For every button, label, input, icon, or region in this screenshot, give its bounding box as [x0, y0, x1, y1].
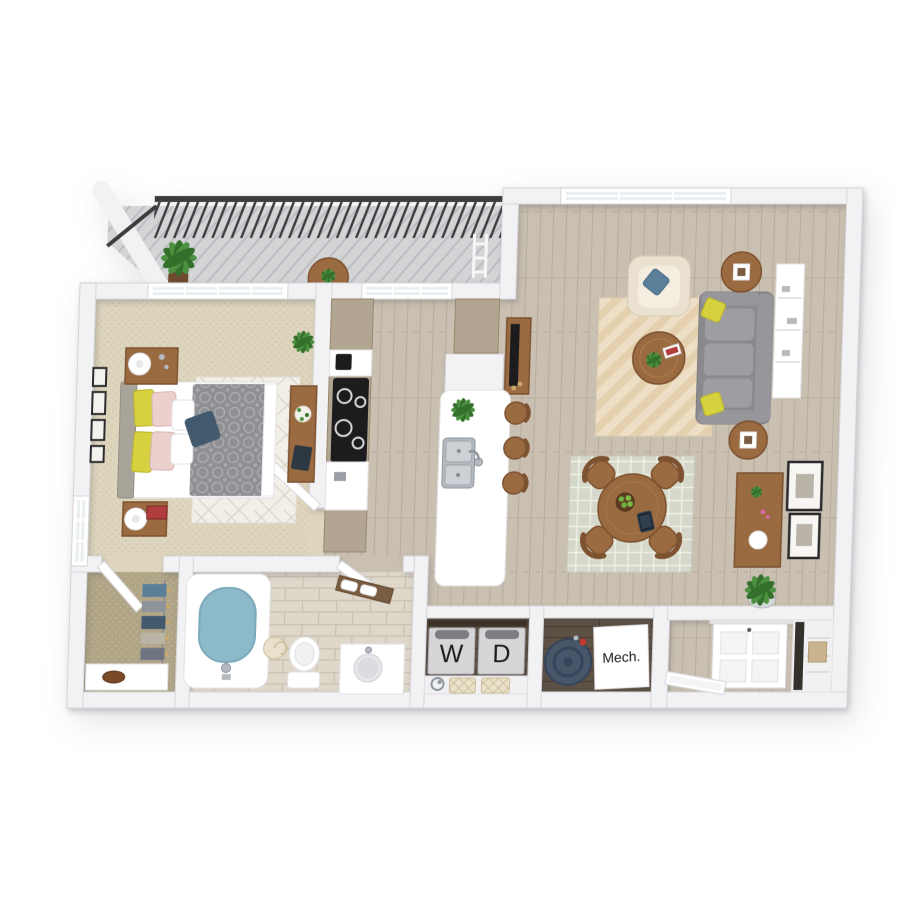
bed: [117, 382, 277, 498]
barstool: [502, 472, 527, 494]
bedroom-side-window: [71, 496, 89, 566]
storage-box: [808, 642, 827, 662]
floorplan-page: W D: [0, 0, 900, 900]
coat-closet: [791, 620, 833, 692]
tv-console: [505, 318, 531, 394]
mech-label: Mech.: [602, 648, 640, 666]
cooktop: [330, 378, 369, 462]
armchair: [627, 256, 691, 316]
floorplan-rendering: W D: [0, 0, 900, 900]
kitchen-island: [435, 390, 511, 586]
balcony: [98, 190, 503, 298]
end-table-bottom: [729, 421, 768, 459]
bathtub: [183, 574, 271, 688]
living-room-window: [561, 188, 732, 204]
balcony-railing-bar: [155, 196, 503, 202]
apartment-unit: W D: [67, 188, 863, 708]
dryer: D: [478, 628, 525, 674]
sink-faucet: [365, 647, 371, 653]
wall-shelf: [772, 264, 804, 398]
barstool: [504, 437, 529, 459]
dryer-label: D: [492, 640, 511, 668]
decor-plate: [749, 531, 768, 549]
closet-bench: [85, 664, 168, 690]
tub-water: [198, 588, 256, 662]
wood-decor: [103, 671, 125, 683]
bedroom-window: [148, 283, 289, 299]
tub-faucet: [221, 664, 230, 673]
laundry-shelf: [428, 620, 527, 626]
nightstand-top: [125, 348, 178, 384]
tall-cabinet: [454, 299, 500, 353]
laundry-ledge: [424, 676, 528, 694]
books: [147, 506, 167, 519]
wall-art-frames-right: [785, 462, 822, 558]
dining-table: [597, 474, 667, 542]
vanity-sink: [339, 644, 405, 694]
washer: W: [428, 628, 475, 674]
front-door: [711, 624, 787, 688]
toilet: [287, 637, 321, 688]
washer-label: W: [439, 640, 464, 668]
nightstand-bottom: [122, 502, 167, 536]
bedroom-desk: [288, 386, 317, 482]
end-table-top: [721, 252, 762, 292]
kitchen-window: [362, 283, 453, 299]
barstool: [505, 402, 530, 424]
coffee-maker: [335, 354, 352, 370]
sideboard: [734, 473, 783, 567]
coffee-table: [632, 332, 686, 384]
mech-unit-box: Mech.: [594, 625, 649, 690]
wall-art-frames: [90, 368, 106, 462]
balcony-railing-pickets: [154, 202, 503, 238]
sofa: [696, 292, 774, 424]
